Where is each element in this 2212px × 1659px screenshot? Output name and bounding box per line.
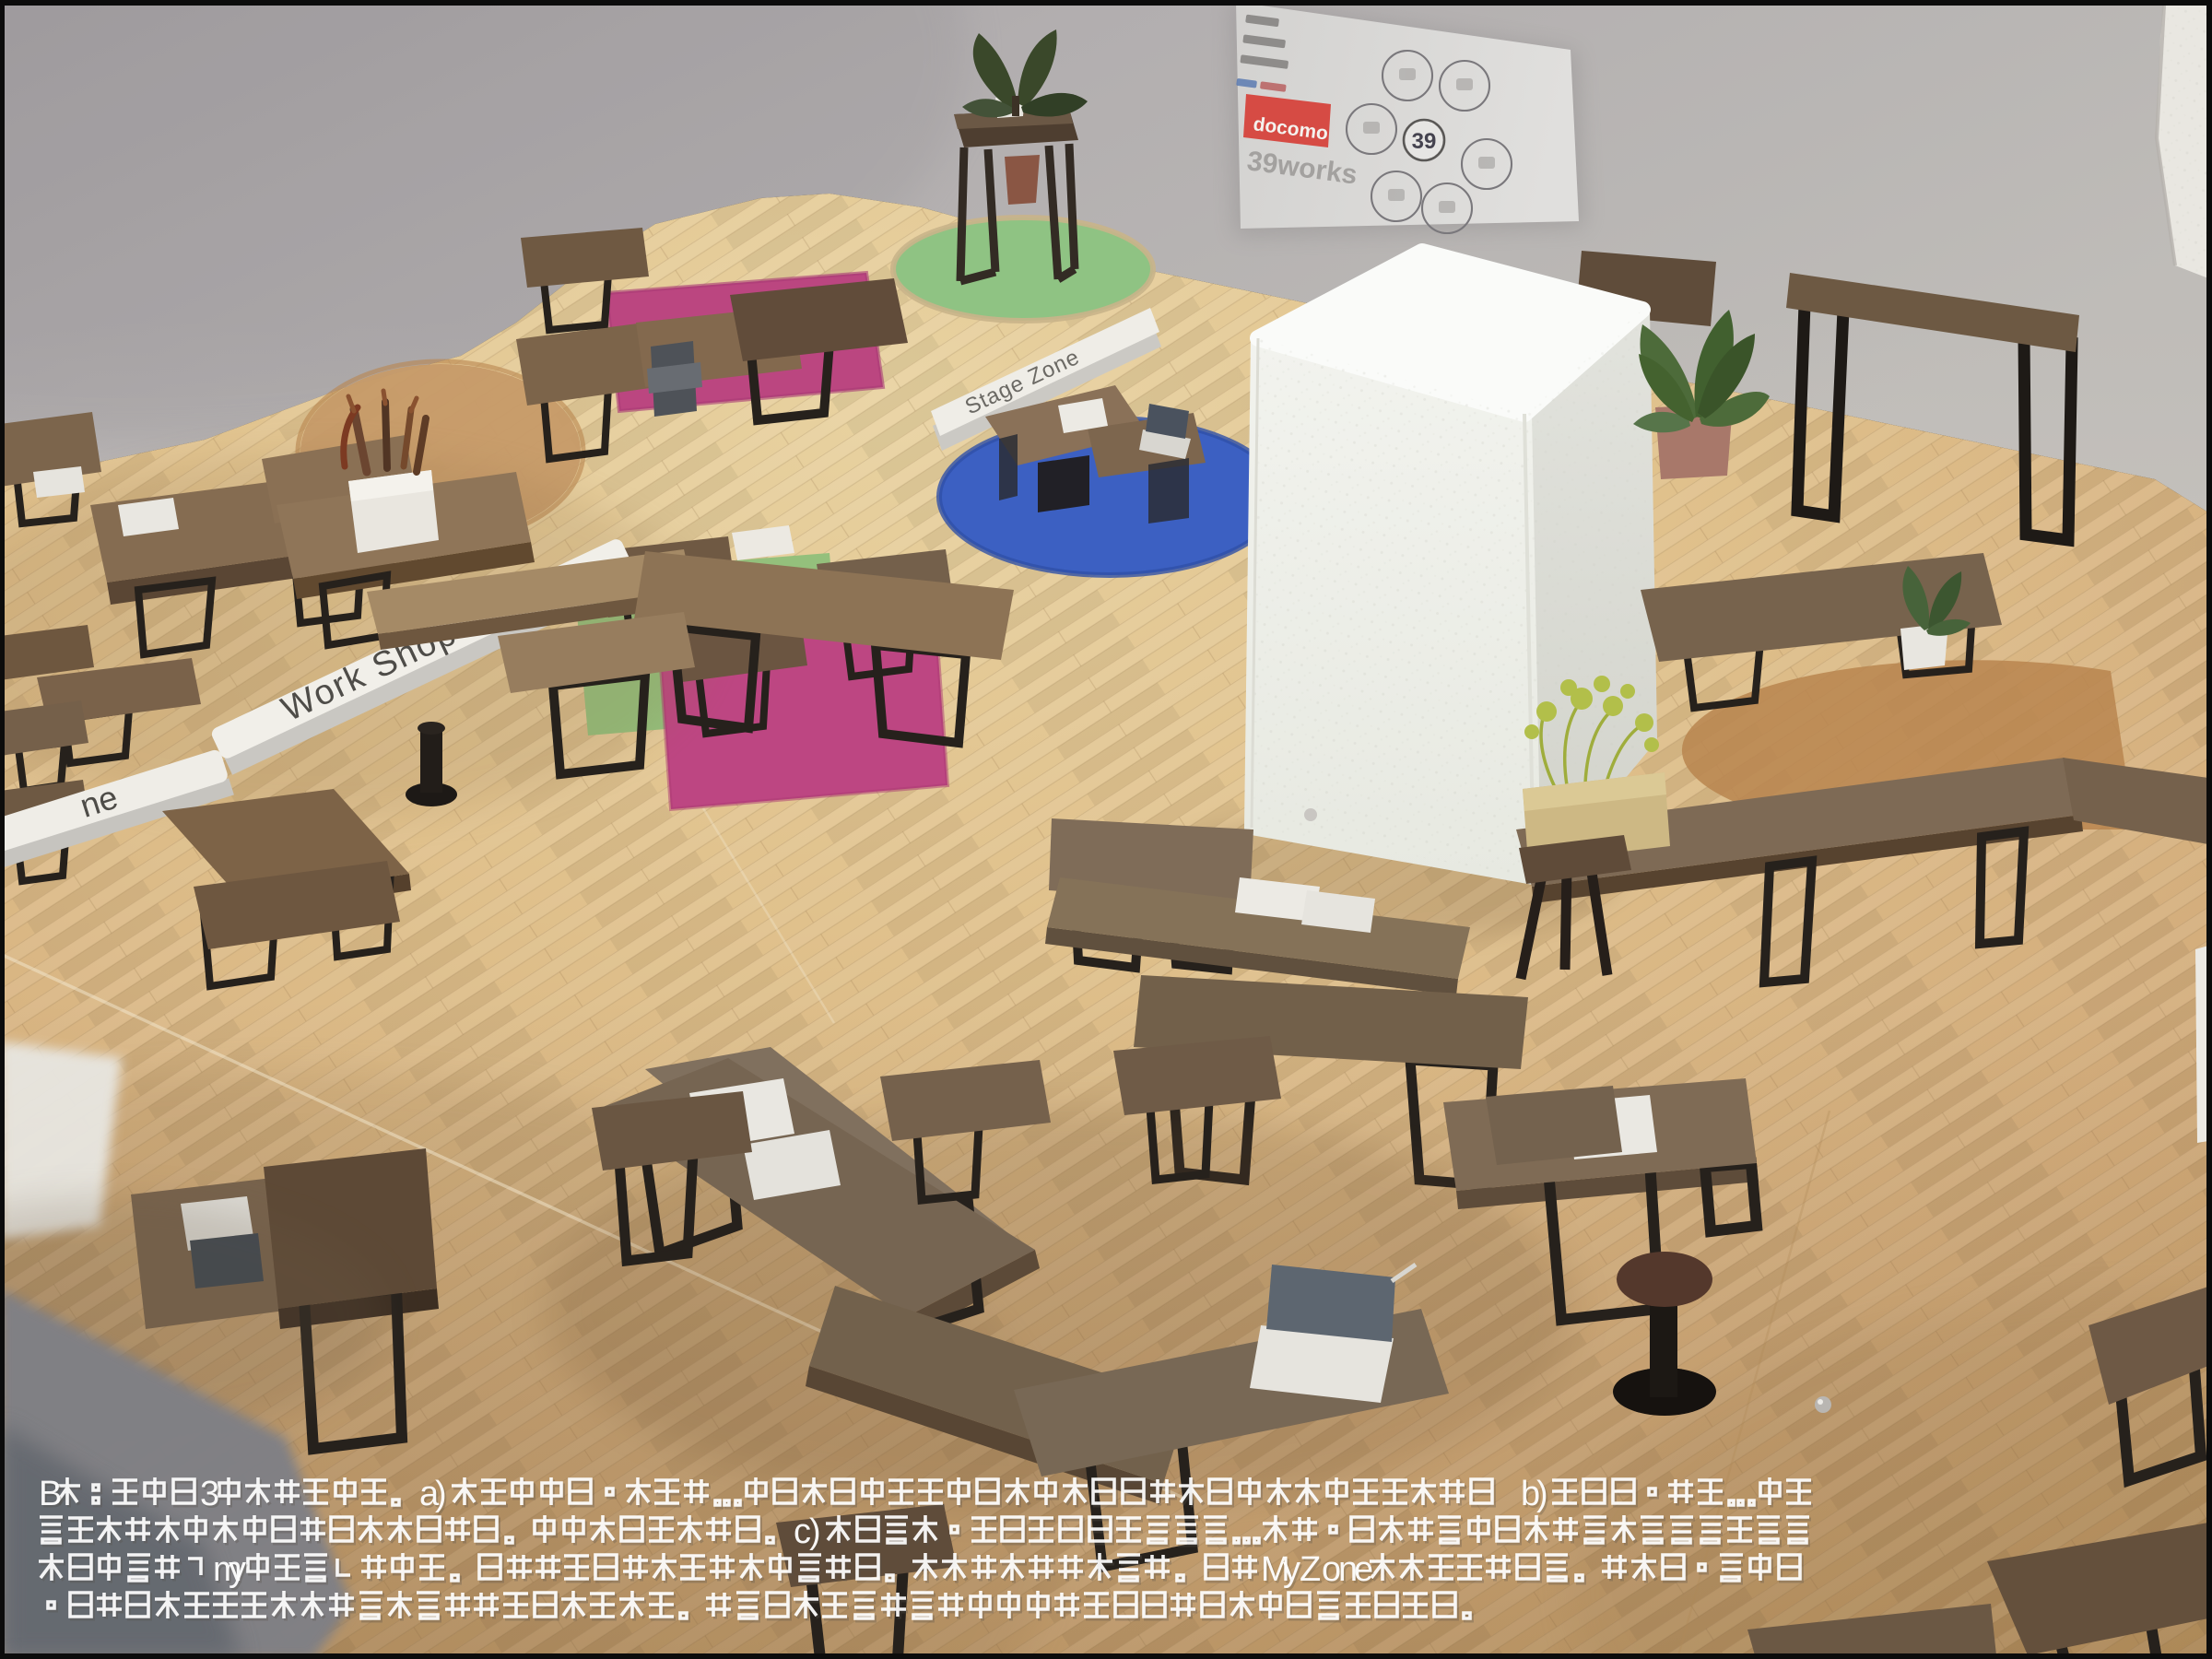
svg-text:39: 39 xyxy=(1412,129,1437,154)
svg-text:y: y xyxy=(229,1550,246,1589)
svg-text:): ) xyxy=(1536,1475,1548,1513)
svg-text:e: e xyxy=(1354,1550,1373,1589)
svg-text:3: 3 xyxy=(200,1475,219,1513)
svg-text:): ) xyxy=(435,1475,447,1513)
svg-text:Z: Z xyxy=(1300,1550,1321,1589)
svg-text:): ) xyxy=(809,1512,821,1551)
svg-text:B: B xyxy=(39,1475,62,1513)
svg-text:y: y xyxy=(1283,1550,1300,1589)
